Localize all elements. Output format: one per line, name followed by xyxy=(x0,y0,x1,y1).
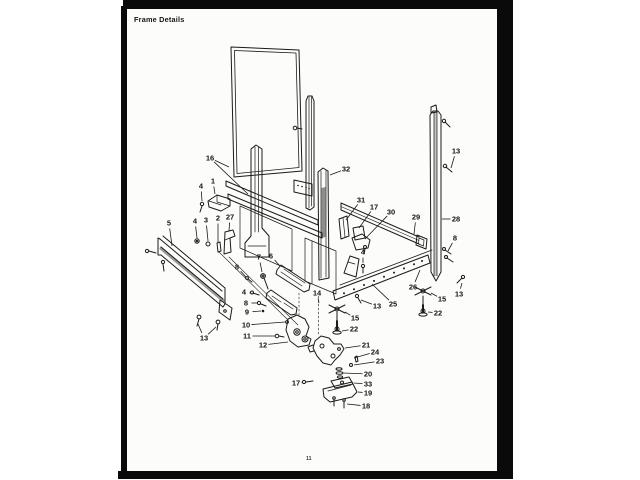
page-title: Frame Details xyxy=(134,15,184,24)
callout-label-20: 20 xyxy=(364,370,372,379)
callout-label-7: 7 xyxy=(257,253,261,262)
callout-label-31: 31 xyxy=(357,196,365,205)
callout-label-8: 8 xyxy=(235,263,239,272)
callout-label-3: 3 xyxy=(204,216,208,225)
callout-label-8: 8 xyxy=(453,234,457,243)
callout-label-15: 15 xyxy=(351,314,359,323)
callout-label-10: 10 xyxy=(242,321,250,330)
callout-label-14: 14 xyxy=(313,289,322,298)
callout-label-22: 22 xyxy=(434,309,442,318)
callout-label-13: 13 xyxy=(200,334,208,343)
callout-label-2: 2 xyxy=(216,214,220,223)
callout-label-27: 27 xyxy=(226,213,234,222)
scanned-manual-page: Frame Details xyxy=(0,0,640,480)
scan-canvas: Frame Details xyxy=(0,0,640,480)
callout-label-9: 9 xyxy=(245,308,249,317)
scan-border-right xyxy=(497,0,513,479)
callout-label-15: 15 xyxy=(438,295,446,304)
scan-border-left xyxy=(121,6,127,473)
callout-label-8: 8 xyxy=(244,299,248,308)
callout-label-13: 13 xyxy=(452,147,460,156)
callout-label-23: 23 xyxy=(376,357,384,366)
callout-label-13: 13 xyxy=(455,290,463,299)
callout-label-24: 24 xyxy=(371,348,380,357)
scan-border-bottom xyxy=(118,471,513,479)
callout-label-26: 26 xyxy=(409,283,417,292)
scan-border-top xyxy=(123,0,513,9)
callout-label-25: 25 xyxy=(389,300,397,309)
callout-label-5: 5 xyxy=(167,219,171,228)
callout-label-17: 17 xyxy=(292,379,300,388)
callout-label-29: 29 xyxy=(412,213,420,222)
callout-label-30: 30 xyxy=(387,208,395,217)
callout-label-21: 21 xyxy=(362,341,370,350)
callout-label-33: 33 xyxy=(364,380,372,389)
page-number: 11 xyxy=(306,456,312,462)
callout-label-28: 28 xyxy=(452,215,460,224)
callout-label-1: 1 xyxy=(211,177,215,186)
callout-label-19: 19 xyxy=(364,389,372,398)
callout-label-32: 32 xyxy=(342,165,350,174)
callout-label-17: 17 xyxy=(370,203,378,212)
callout-label-13: 13 xyxy=(373,302,381,311)
callout-label-16: 16 xyxy=(206,154,214,163)
callout-label-11: 11 xyxy=(243,332,251,341)
callout-label-12: 12 xyxy=(259,341,267,350)
callout-label-6: 6 xyxy=(269,252,273,261)
callout-label-22: 22 xyxy=(350,325,358,334)
callout-label-18: 18 xyxy=(362,402,370,411)
